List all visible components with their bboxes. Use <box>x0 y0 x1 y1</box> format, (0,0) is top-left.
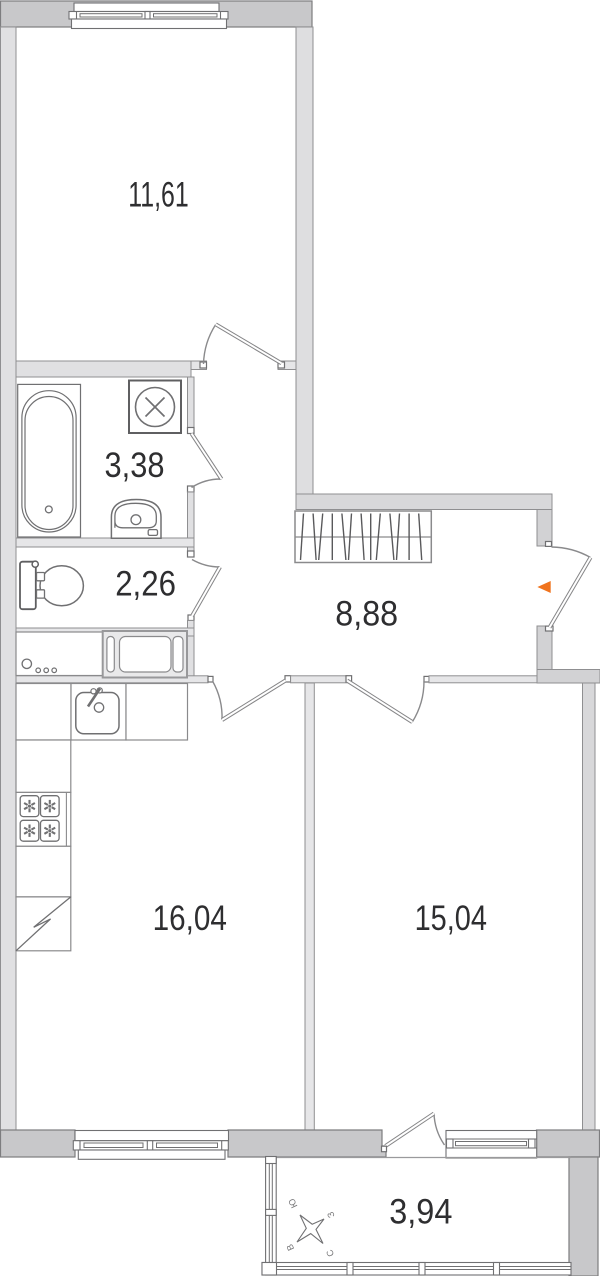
svg-text:11,61: 11,61 <box>128 175 189 215</box>
svg-text:3,94: 3,94 <box>389 1192 452 1232</box>
svg-text:8,88: 8,88 <box>335 594 398 634</box>
svg-text:3,38: 3,38 <box>105 445 165 485</box>
svg-text:15,04: 15,04 <box>415 898 487 938</box>
svg-text:16,04: 16,04 <box>153 898 227 938</box>
svg-text:2,26: 2,26 <box>115 564 176 604</box>
